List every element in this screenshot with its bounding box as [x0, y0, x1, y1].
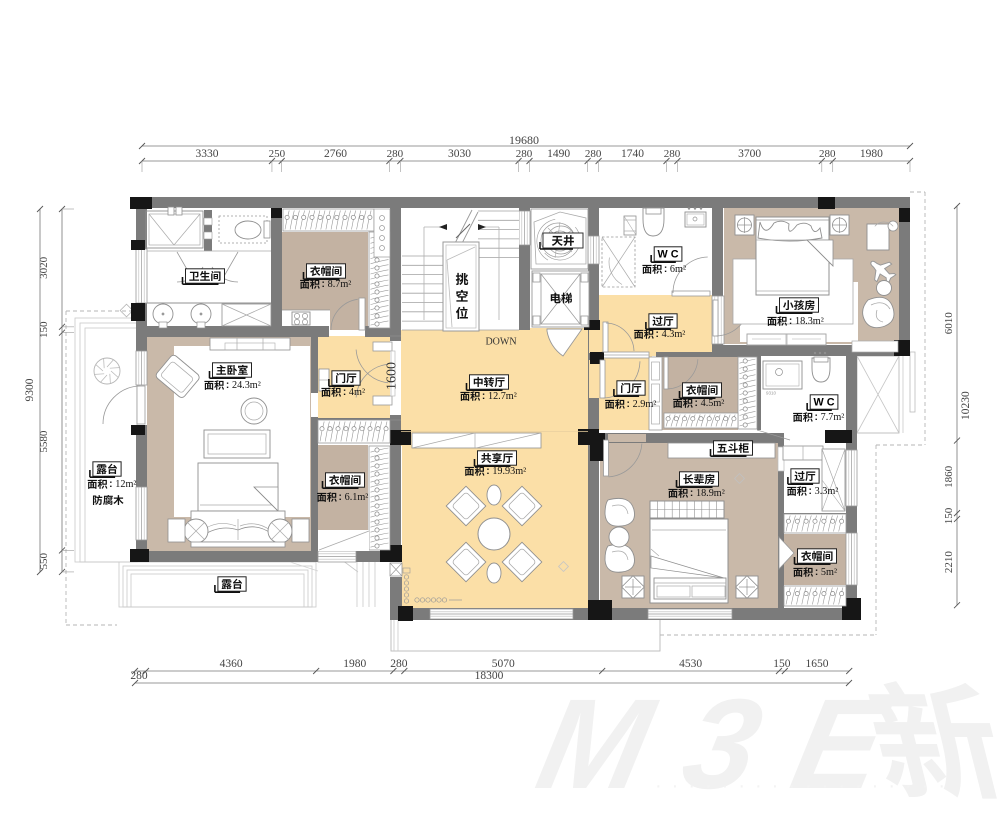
svg-text:1980: 1980 — [343, 658, 366, 670]
svg-text:12m²: 12m² — [115, 479, 136, 490]
svg-text:3700: 3700 — [738, 148, 761, 160]
svg-text::: : — [656, 329, 659, 340]
svg-text:18.9m²: 18.9m² — [696, 488, 725, 499]
svg-text:5580: 5580 — [38, 430, 50, 453]
svg-text:2.9m²: 2.9m² — [633, 399, 657, 410]
svg-text:19.93m²: 19.93m² — [492, 466, 526, 477]
svg-text:3020: 3020 — [38, 256, 50, 279]
svg-text:150: 150 — [943, 507, 955, 524]
svg-text:150: 150 — [773, 658, 791, 670]
svg-text:280: 280 — [585, 148, 602, 160]
svg-text:280: 280 — [516, 148, 533, 160]
svg-text:280: 280 — [819, 148, 836, 160]
svg-text::: : — [627, 399, 630, 410]
svg-text:4530: 4530 — [679, 658, 702, 670]
svg-text:19680: 19680 — [509, 133, 539, 147]
svg-text:8.7m²: 8.7m² — [328, 279, 352, 290]
svg-text:1740: 1740 — [621, 148, 644, 160]
svg-text:18300: 18300 — [475, 670, 504, 682]
svg-text:5m²: 5m² — [821, 567, 837, 578]
svg-text:1650: 1650 — [806, 658, 829, 670]
svg-text:10230: 10230 — [960, 391, 972, 420]
svg-text:DOWN: DOWN — [485, 337, 516, 348]
svg-text:1490: 1490 — [547, 148, 570, 160]
svg-text:6010: 6010 — [943, 312, 955, 335]
svg-text::: : — [343, 387, 346, 398]
svg-text::: : — [486, 466, 489, 477]
svg-text:280: 280 — [390, 658, 408, 670]
svg-text:7.7m²: 7.7m² — [821, 412, 845, 423]
svg-text:W C: W C — [814, 397, 835, 409]
svg-text:4.5m²: 4.5m² — [701, 398, 725, 409]
svg-text:2210: 2210 — [943, 551, 955, 574]
svg-text::: : — [339, 492, 342, 503]
svg-text::: : — [664, 264, 667, 275]
svg-text:W C: W C — [658, 249, 679, 261]
svg-text:1980: 1980 — [860, 148, 883, 160]
svg-text::: : — [815, 412, 818, 423]
svg-text::: : — [482, 391, 485, 402]
svg-text:6m²: 6m² — [670, 264, 686, 275]
svg-text:550: 550 — [38, 552, 50, 569]
svg-text:2760: 2760 — [324, 148, 347, 160]
svg-text::: : — [695, 398, 698, 409]
svg-text::: : — [690, 488, 693, 499]
svg-text::: : — [322, 279, 325, 290]
svg-text:1860: 1860 — [943, 465, 955, 488]
svg-text:3330: 3330 — [195, 148, 218, 160]
svg-text:9300: 9300 — [24, 378, 36, 401]
svg-text:18.3m²: 18.3m² — [795, 316, 824, 327]
svg-text::: : — [109, 479, 112, 490]
svg-text:24.3m²: 24.3m² — [232, 380, 261, 391]
svg-text:6.1m²: 6.1m² — [345, 492, 369, 503]
svg-text:3030: 3030 — [448, 148, 471, 160]
svg-text:4.3m²: 4.3m² — [662, 329, 686, 340]
svg-text:5070: 5070 — [492, 658, 515, 670]
svg-text::: : — [815, 567, 818, 578]
svg-text:4m²: 4m² — [349, 387, 365, 398]
svg-text::: : — [226, 380, 229, 391]
svg-text::: : — [809, 486, 812, 497]
svg-text:280: 280 — [387, 148, 404, 160]
svg-text:280: 280 — [130, 670, 148, 682]
svg-text:4360: 4360 — [220, 658, 243, 670]
svg-text:9310: 9310 — [766, 391, 777, 396]
svg-text:250: 250 — [269, 148, 286, 160]
svg-text::: : — [789, 316, 792, 327]
svg-text:1600: 1600 — [385, 362, 400, 390]
svg-text:150: 150 — [38, 321, 50, 338]
svg-text:12.7m²: 12.7m² — [488, 391, 517, 402]
svg-text:3.3m²: 3.3m² — [815, 486, 839, 497]
svg-text:280: 280 — [664, 148, 681, 160]
